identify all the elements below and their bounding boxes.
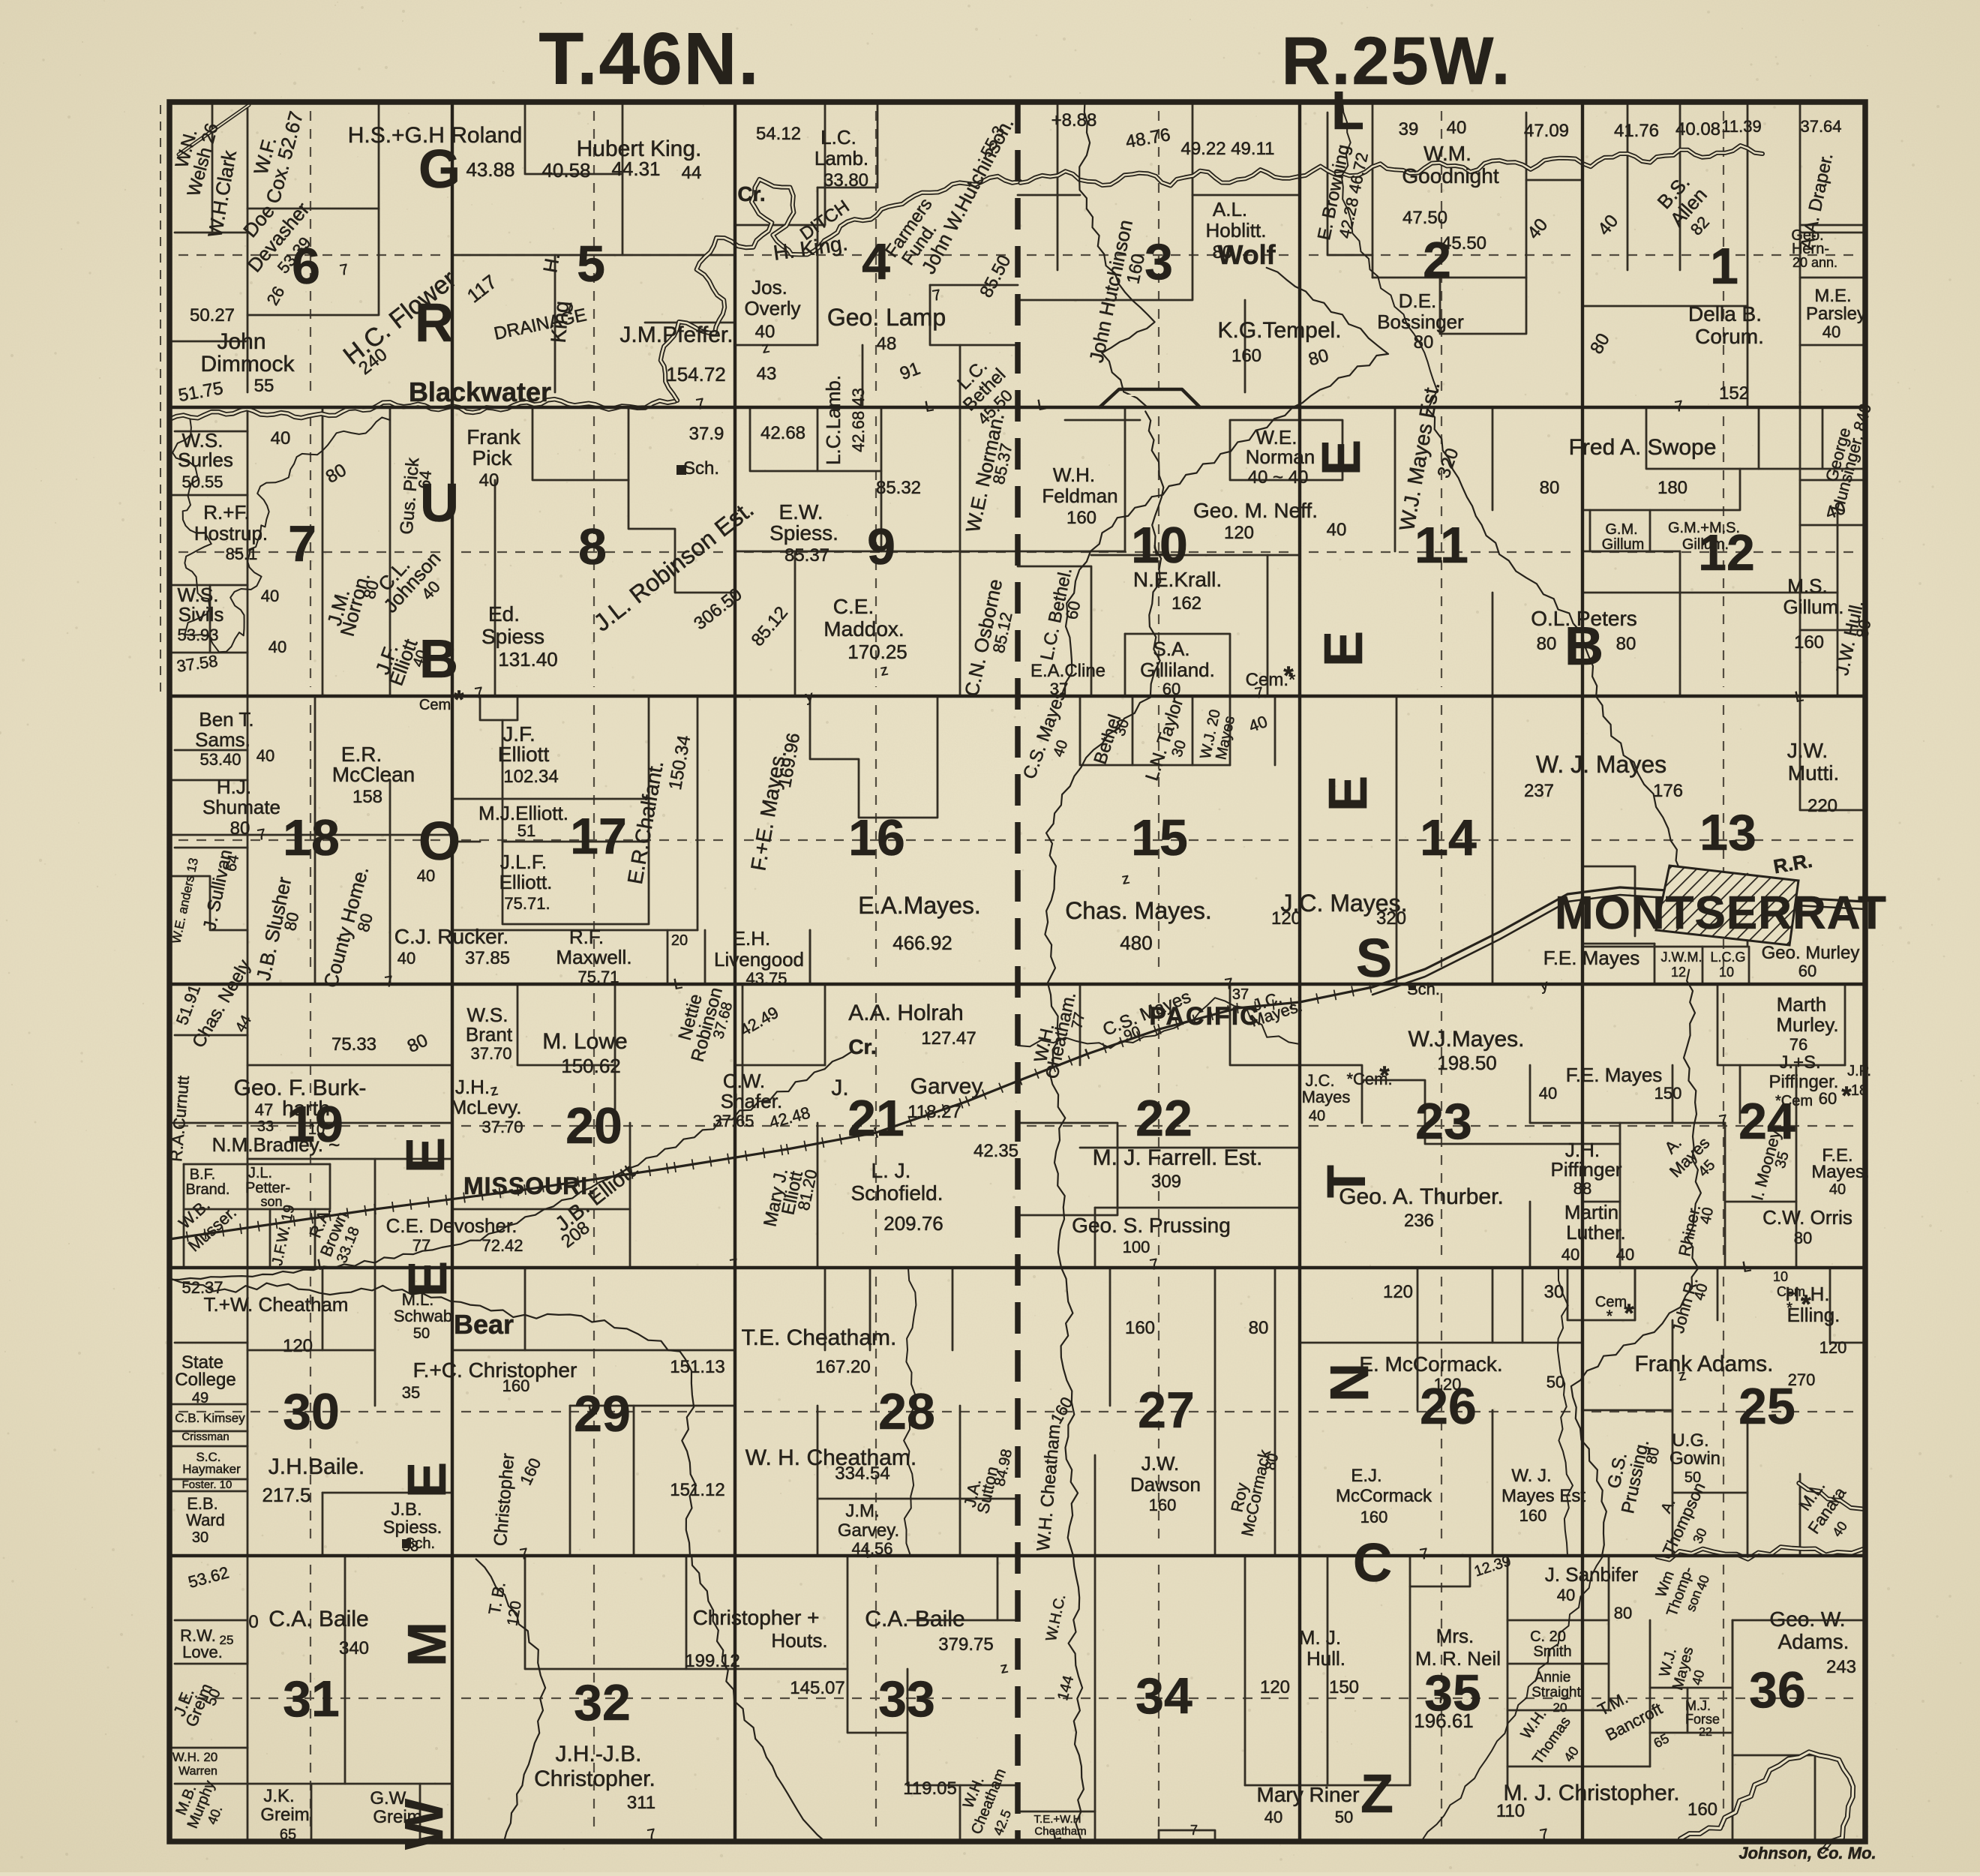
svg-text:Jos.: Jos. <box>751 276 787 299</box>
svg-text:Dawson: Dawson <box>1130 1473 1201 1496</box>
svg-text:K.G.Tempel.: K.G.Tempel. <box>1217 318 1341 343</box>
svg-text:80: 80 <box>1249 1318 1269 1338</box>
svg-text:120: 120 <box>1271 908 1301 929</box>
svg-text:20: 20 <box>1553 1700 1567 1715</box>
svg-text:3: 3 <box>1144 233 1173 290</box>
svg-text:Gillum: Gillum <box>1602 536 1645 553</box>
svg-text:Shafer.: Shafer. <box>721 1090 782 1112</box>
svg-text:88: 88 <box>1573 1179 1591 1198</box>
svg-text:harth: harth <box>282 1097 330 1120</box>
svg-text:W. J. Mayes: W. J. Mayes <box>1536 751 1666 778</box>
svg-text:80: 80 <box>1262 1452 1282 1472</box>
svg-text:309: 309 <box>1151 1172 1181 1192</box>
svg-text:W. H. Cheatham.: W. H. Cheatham. <box>745 1445 916 1470</box>
svg-text:151.13: 151.13 <box>670 1357 724 1377</box>
svg-text:Foster. 10: Foster. 10 <box>182 1478 232 1491</box>
svg-text:Elliott: Elliott <box>498 743 550 766</box>
svg-text:50.27: 50.27 <box>190 305 235 326</box>
svg-text:C. 20: C. 20 <box>1530 1628 1566 1645</box>
svg-text:W.H. 20: W.H. 20 <box>172 1750 217 1764</box>
svg-text:77: 77 <box>412 1236 430 1255</box>
svg-text:80: 80 <box>1643 1446 1663 1466</box>
svg-text:M. J.: M. J. <box>1299 1626 1341 1649</box>
svg-text:S: S <box>1356 929 1392 989</box>
svg-text:E: E <box>1314 631 1374 667</box>
svg-text:40: 40 <box>271 428 291 449</box>
svg-text:J.: J. <box>831 1076 848 1100</box>
svg-text:Fred A. Swope: Fred A. Swope <box>1569 435 1717 460</box>
svg-text:150: 150 <box>1329 1677 1359 1697</box>
svg-text:60: 60 <box>1062 599 1084 621</box>
svg-text:Chas. Mayes.: Chas. Mayes. <box>1065 897 1212 924</box>
svg-text:51: 51 <box>517 821 535 840</box>
svg-text:33: 33 <box>878 1670 935 1727</box>
svg-text:80: 80 <box>1213 242 1233 263</box>
svg-text:45.50: 45.50 <box>1441 233 1486 254</box>
svg-text:30: 30 <box>192 1529 208 1546</box>
svg-text:MONTSERRAT: MONTSERRAT <box>1555 887 1887 939</box>
svg-text:N.M.Bradley. ~: N.M.Bradley. ~ <box>212 1133 340 1156</box>
svg-text:C.B. Kimsey: C.B. Kimsey <box>175 1411 245 1425</box>
svg-text:40: 40 <box>1822 323 1840 341</box>
svg-text:Geo. Murley: Geo. Murley <box>1762 943 1860 963</box>
svg-text:8: 8 <box>578 518 607 575</box>
svg-text:Parsley: Parsley <box>1806 304 1866 324</box>
svg-text:43.75: 43.75 <box>745 969 787 988</box>
svg-text:J.W.: J.W. <box>1787 739 1828 762</box>
svg-text:Smith: Smith <box>1533 1643 1571 1660</box>
svg-text:Geo. A. Thurber.: Geo. A. Thurber. <box>1339 1184 1504 1209</box>
svg-text:J.M.Pfeffer.: J.M.Pfeffer. <box>619 323 733 347</box>
svg-text:72.42: 72.42 <box>481 1236 523 1255</box>
svg-text:34: 34 <box>1135 1667 1192 1724</box>
svg-text:40: 40 <box>1539 1084 1557 1103</box>
svg-text:Gowin: Gowin <box>1669 1448 1720 1469</box>
svg-text:50: 50 <box>1335 1808 1353 1826</box>
svg-text:H.J.: H.J. <box>217 776 251 798</box>
svg-text:O: O <box>418 812 460 872</box>
svg-text:85.37: 85.37 <box>784 545 829 566</box>
svg-text:236: 236 <box>1404 1211 1434 1231</box>
svg-text:20: 20 <box>565 1097 622 1154</box>
svg-text:Geo. M. Neff.: Geo. M. Neff. <box>1193 499 1318 522</box>
svg-text:McCormack: McCormack <box>1336 1486 1432 1506</box>
svg-text:Mary Riner: Mary Riner <box>1257 1783 1360 1806</box>
svg-text:M.E.: M.E. <box>1814 286 1851 306</box>
svg-text:80: 80 <box>230 818 250 839</box>
svg-text:37.70: 37.70 <box>481 1118 523 1136</box>
svg-text:80: 80 <box>1616 634 1636 654</box>
svg-text:7: 7 <box>288 515 316 572</box>
svg-text:J.H.: J.H. <box>455 1076 490 1098</box>
svg-text:334.54: 334.54 <box>835 1463 889 1484</box>
svg-text:17: 17 <box>570 808 627 865</box>
svg-text:Hostrup.: Hostrup. <box>194 522 268 545</box>
svg-text:Elling.: Elling. <box>1787 1304 1840 1326</box>
svg-text:O.L. Peters: O.L. Peters <box>1531 607 1637 630</box>
svg-text:64: 64 <box>415 470 435 490</box>
svg-text:L.C.G: L.C.G <box>1710 950 1745 965</box>
svg-text:Hull.: Hull. <box>1306 1647 1345 1670</box>
svg-text:J.W.: J.W. <box>1141 1452 1180 1475</box>
svg-text:27: 27 <box>1138 1382 1195 1439</box>
svg-text:Greim: Greim <box>260 1805 309 1825</box>
svg-text:44: 44 <box>682 163 702 183</box>
svg-text:40: 40 <box>1557 1586 1575 1604</box>
svg-text:12: 12 <box>1671 965 1686 980</box>
svg-text:Hubert King.: Hubert King. <box>577 137 702 161</box>
svg-text:160: 160 <box>1794 632 1824 653</box>
svg-text:102.34: 102.34 <box>503 767 558 787</box>
svg-text:Goodnight: Goodnight <box>1402 164 1498 188</box>
svg-text:35: 35 <box>402 1383 420 1402</box>
svg-text:J.L.F.: J.L.F. <box>500 851 547 873</box>
svg-text:T.E. Cheatham.: T.E. Cheatham. <box>742 1325 897 1350</box>
svg-text:176: 176 <box>1653 781 1683 801</box>
svg-text:20: 20 <box>671 932 688 949</box>
svg-text:M.S.: M.S. <box>1787 575 1827 597</box>
svg-text:Sch.: Sch. <box>683 458 719 479</box>
svg-text:167.20: 167.20 <box>815 1357 870 1377</box>
svg-text:40: 40 <box>1616 1245 1634 1264</box>
svg-text:Elliott.: Elliott. <box>499 871 553 893</box>
svg-text:J.L.: J.L. <box>248 1165 272 1181</box>
svg-text:379.75: 379.75 <box>938 1634 993 1655</box>
svg-text:40: 40 <box>1697 1206 1717 1226</box>
svg-text:Marth: Marth <box>1777 993 1826 1016</box>
svg-text:Haymaker: Haymaker <box>182 1462 241 1476</box>
svg-text:Warren: Warren <box>178 1765 217 1778</box>
svg-text:Spiess.: Spiess. <box>383 1517 442 1538</box>
svg-text:120: 120 <box>1434 1375 1462 1394</box>
svg-text:son: son <box>260 1194 282 1209</box>
svg-text:U.G.: U.G. <box>1672 1430 1708 1451</box>
svg-text:120: 120 <box>283 1336 313 1356</box>
svg-text:M.J.: M.J. <box>1685 1698 1711 1713</box>
svg-text:S.A.: S.A. <box>1153 638 1189 660</box>
svg-text:Surles: Surles <box>178 449 233 471</box>
svg-text:60: 60 <box>1162 680 1180 698</box>
svg-text:Mayes.: Mayes. <box>1811 1162 1869 1182</box>
svg-text:7: 7 <box>1190 1823 1198 1838</box>
svg-text:*: * <box>1606 1307 1613 1325</box>
svg-text:*: * <box>1283 662 1294 690</box>
svg-text:119.05: 119.05 <box>903 1778 957 1799</box>
svg-text:N.E.Krall.: N.E.Krall. <box>1133 568 1222 591</box>
svg-text:E.J.: E.J. <box>1351 1466 1381 1486</box>
svg-text:R.25W.: R.25W. <box>1281 24 1511 99</box>
svg-text:Sams.: Sams. <box>195 728 250 751</box>
svg-text:16: 16 <box>848 809 905 866</box>
svg-text:Christopher.: Christopher. <box>534 1766 655 1791</box>
svg-text:55: 55 <box>254 376 274 396</box>
svg-text:85.32: 85.32 <box>876 478 921 498</box>
svg-text:L.C.: L.C. <box>820 126 856 149</box>
svg-text:47.09: 47.09 <box>1524 121 1569 141</box>
svg-text:120: 120 <box>1260 1677 1290 1697</box>
svg-text:J.M.: J.M. <box>845 1501 879 1521</box>
svg-text:10: 10 <box>1719 965 1734 980</box>
svg-text:*Cem: *Cem <box>1775 1093 1813 1109</box>
svg-text:Frank Adams.: Frank Adams. <box>1634 1352 1773 1376</box>
svg-text:Corum.: Corum. <box>1695 325 1764 348</box>
svg-text:37.9: 37.9 <box>689 424 724 444</box>
svg-text:Straight: Straight <box>1531 1685 1581 1700</box>
svg-text:199.12: 199.12 <box>685 1651 739 1671</box>
svg-text:Annie: Annie <box>1534 1670 1571 1685</box>
svg-text:0: 0 <box>248 1612 258 1632</box>
svg-text:*: * <box>454 686 464 714</box>
svg-text:40: 40 <box>256 746 274 765</box>
svg-text:T.E.+W.H: T.E.+W.H <box>1034 1813 1081 1826</box>
svg-text:50: 50 <box>413 1325 430 1342</box>
svg-text:Z: Z <box>1360 1764 1393 1824</box>
svg-text:+8.88: +8.88 <box>1051 110 1097 131</box>
svg-text:127.47: 127.47 <box>921 1028 976 1049</box>
svg-text:Brand.: Brand. <box>186 1181 230 1198</box>
svg-text:Ben T.: Ben T. <box>199 708 253 731</box>
svg-text:160: 160 <box>1519 1506 1547 1525</box>
svg-text:C.E. Devosher.: C.E. Devosher. <box>386 1214 517 1237</box>
svg-text:160: 160 <box>1066 508 1096 528</box>
svg-text:22: 22 <box>1699 1726 1712 1739</box>
svg-text:Gillum.: Gillum. <box>1783 596 1844 618</box>
svg-text:*: * <box>1379 1061 1390 1090</box>
svg-text:37.65: 37.65 <box>712 1112 754 1130</box>
svg-text:J.H.Baile.: J.H.Baile. <box>268 1454 364 1479</box>
svg-text:Hoblitt.: Hoblitt. <box>1206 219 1267 242</box>
svg-text:M. J. Christopher.: M. J. Christopher. <box>1503 1781 1679 1805</box>
svg-text:150.62: 150.62 <box>561 1055 621 1077</box>
svg-text:E. McCormack.: E. McCormack. <box>1359 1352 1502 1376</box>
svg-text:A.A. Holrah: A.A. Holrah <box>848 1001 963 1025</box>
svg-text:E.A.Cline: E.A.Cline <box>1030 661 1105 681</box>
svg-text:L. J.: L. J. <box>871 1159 911 1182</box>
svg-text:Luther.: Luther. <box>1566 1221 1626 1244</box>
svg-text:M: M <box>397 1622 457 1667</box>
svg-text:80: 80 <box>1794 1229 1812 1247</box>
svg-text:40: 40 <box>1447 118 1467 138</box>
svg-text:E: E <box>396 1137 456 1173</box>
svg-text:217.5: 217.5 <box>262 1484 310 1506</box>
svg-text:F.+C. Christopher: F.+C. Christopher <box>413 1358 577 1382</box>
svg-text:Schofield.: Schofield. <box>851 1181 943 1205</box>
svg-text:Sivils: Sivils <box>178 603 224 626</box>
svg-text:29: 29 <box>574 1385 631 1442</box>
svg-text:20 ann.: 20 ann. <box>1792 255 1837 270</box>
svg-text:MISSOURI.: MISSOURI. <box>463 1172 595 1199</box>
svg-text:E: E <box>1318 776 1378 812</box>
svg-text:M. Lowe: M. Lowe <box>542 1029 627 1054</box>
svg-text:10: 10 <box>1773 1269 1788 1284</box>
svg-text:McClean: McClean <box>332 763 415 786</box>
svg-text:Adams.: Adams. <box>1778 1630 1849 1653</box>
svg-text:Bear: Bear <box>454 1309 514 1340</box>
svg-text:40: 40 <box>261 587 279 605</box>
svg-text:J. Sanbifer: J. Sanbifer <box>1545 1563 1639 1586</box>
svg-text:R.+F.: R.+F. <box>203 501 249 524</box>
svg-text:College: College <box>175 1370 235 1390</box>
svg-text:D.E.: D.E. <box>1399 290 1437 312</box>
svg-text:40: 40 <box>1561 1245 1579 1264</box>
svg-text:G.M.: G.M. <box>1605 521 1637 538</box>
svg-text:14: 14 <box>1420 809 1477 866</box>
svg-text:60: 60 <box>1798 962 1816 980</box>
svg-text:15: 15 <box>1131 809 1188 866</box>
svg-text:33.80: 33.80 <box>823 170 868 191</box>
svg-text:9: 9 <box>867 518 895 575</box>
svg-text:41.76: 41.76 <box>1614 121 1659 141</box>
svg-text:320: 320 <box>1376 908 1406 929</box>
svg-text:40: 40 <box>1327 520 1347 540</box>
svg-text:Lamb.: Lamb. <box>814 147 868 170</box>
svg-text:80: 80 <box>1540 478 1560 498</box>
svg-text:W.J.Mayes.: W.J.Mayes. <box>1408 1027 1524 1052</box>
svg-text:Cr.: Cr. <box>848 1035 876 1058</box>
svg-text:R.F.: R.F. <box>569 926 604 948</box>
svg-text:42.68: 42.68 <box>760 423 805 443</box>
svg-text:C.J. Rucker.: C.J. Rucker. <box>394 925 508 948</box>
svg-text:80: 80 <box>1414 332 1434 353</box>
svg-text:J.P.: J.P. <box>1847 1063 1871 1079</box>
svg-text:Spiess.: Spiess. <box>769 521 838 545</box>
svg-text:40 ~ 40: 40 ~ 40 <box>1248 467 1309 488</box>
svg-text:43: 43 <box>757 364 777 384</box>
svg-text:Mayes: Mayes <box>1302 1088 1351 1106</box>
svg-text:47.50: 47.50 <box>1402 208 1447 228</box>
svg-text:50.55: 50.55 <box>181 473 223 491</box>
svg-text:25: 25 <box>1738 1378 1795 1435</box>
svg-text:39: 39 <box>1399 119 1419 140</box>
svg-text:80: 80 <box>1852 618 1875 640</box>
svg-text:40: 40 <box>755 322 775 342</box>
svg-text:G.W.: G.W. <box>370 1788 409 1808</box>
svg-text:43.88: 43.88 <box>466 158 514 181</box>
svg-text:49: 49 <box>192 1390 208 1406</box>
svg-text:Ed.: Ed. <box>488 602 520 626</box>
svg-text:131.40: 131.40 <box>498 648 558 671</box>
svg-text:Crissman: Crissman <box>181 1430 229 1443</box>
svg-text:40.08: 40.08 <box>1675 119 1720 140</box>
svg-text:40: 40 <box>397 949 415 968</box>
svg-text:152: 152 <box>1719 383 1749 404</box>
svg-text:Frank: Frank <box>466 425 521 449</box>
svg-text:37.85: 37.85 <box>465 948 510 968</box>
svg-text:18: 18 <box>1851 1082 1867 1099</box>
svg-text:54.12: 54.12 <box>756 124 801 144</box>
svg-text:Spiess: Spiess <box>481 625 544 648</box>
svg-text:53.93: 53.93 <box>177 626 218 644</box>
svg-text:40: 40 <box>417 866 435 885</box>
svg-text:T.+W. Cheatham: T.+W. Cheatham <box>204 1293 349 1316</box>
svg-text:E: E <box>397 1462 457 1498</box>
svg-text:G.M.+M.S.: G.M.+M.S. <box>1668 520 1740 536</box>
svg-text:80: 80 <box>280 911 303 932</box>
svg-text:243: 243 <box>1826 1657 1856 1677</box>
svg-text:85.1: 85.1 <box>226 545 258 563</box>
svg-text:F.E. Mayes: F.E. Mayes <box>1566 1064 1663 1086</box>
svg-text:Norman: Norman <box>1246 446 1315 468</box>
svg-text:H.S.+G.H Roland: H.S.+G.H Roland <box>348 123 523 148</box>
svg-text:Cr.: Cr. <box>737 182 765 206</box>
svg-text:Dimmock: Dimmock <box>201 352 295 377</box>
svg-text:47: 47 <box>255 1100 273 1119</box>
svg-text:Livengood: Livengood <box>714 948 804 971</box>
svg-text:E: E <box>1312 440 1372 476</box>
svg-text:37.64: 37.64 <box>1800 117 1841 136</box>
svg-text:E.W.: E.W. <box>778 500 823 524</box>
svg-text:160: 160 <box>1231 346 1261 366</box>
svg-text:53.40: 53.40 <box>199 750 241 769</box>
svg-text:L: L <box>1331 81 1364 141</box>
svg-text:B.F.: B.F. <box>190 1166 215 1183</box>
svg-text:A.L.: A.L. <box>1213 198 1247 221</box>
svg-text:18: 18 <box>283 809 340 866</box>
svg-text:160: 160 <box>1360 1508 1388 1526</box>
svg-text:E.A.Mayes.: E.A.Mayes. <box>858 892 981 919</box>
svg-text:36: 36 <box>1749 1661 1806 1718</box>
svg-text:Shumate: Shumate <box>202 796 280 818</box>
svg-text:160: 160 <box>1125 1318 1155 1338</box>
svg-text:40: 40 <box>1829 1181 1846 1198</box>
svg-text:50: 50 <box>1546 1373 1564 1391</box>
svg-text:110: 110 <box>1496 1801 1525 1821</box>
svg-text:480: 480 <box>1120 932 1152 954</box>
svg-text:C.W. Orris: C.W. Orris <box>1762 1206 1852 1229</box>
svg-text:75.33: 75.33 <box>331 1034 376 1055</box>
svg-text:28: 28 <box>878 1383 935 1440</box>
svg-text:Cem: Cem <box>419 697 451 713</box>
svg-text:120: 120 <box>1819 1338 1847 1357</box>
svg-text:Garvey.: Garvey. <box>838 1520 899 1541</box>
svg-text:30: 30 <box>1544 1282 1564 1302</box>
svg-text:Geo. Lamp: Geo. Lamp <box>827 304 946 331</box>
svg-text:31: 31 <box>283 1670 340 1727</box>
svg-text:Garvey: Garvey <box>910 1074 983 1099</box>
svg-text:*: * <box>1841 1082 1852 1110</box>
svg-text:John: John <box>217 329 265 354</box>
svg-text:Martin: Martin <box>1564 1201 1618 1223</box>
svg-text:48: 48 <box>877 334 897 354</box>
svg-text:170.25: 170.25 <box>847 641 907 663</box>
svg-text:Brant: Brant <box>466 1023 513 1046</box>
svg-text:160: 160 <box>1149 1496 1177 1514</box>
svg-text:21: 21 <box>847 1090 904 1147</box>
svg-text:120: 120 <box>1224 523 1254 543</box>
svg-text:W.H.: W.H. <box>1053 464 1095 486</box>
svg-text:40.58: 40.58 <box>541 159 590 182</box>
svg-text:F.E. Mayes: F.E. Mayes <box>1543 947 1640 969</box>
svg-text:H.: H. <box>538 251 564 275</box>
svg-text:196.61: 196.61 <box>1414 1709 1474 1732</box>
svg-text:W. J.: W. J. <box>1511 1466 1551 1486</box>
svg-text:13: 13 <box>1699 804 1756 861</box>
svg-text:180: 180 <box>1657 478 1687 498</box>
svg-text:80: 80 <box>1614 1604 1632 1622</box>
svg-text:Overly: Overly <box>744 297 800 320</box>
svg-text:C: C <box>1353 1533 1392 1593</box>
svg-text:198.50: 198.50 <box>1437 1052 1497 1074</box>
svg-text:1: 1 <box>1710 238 1738 295</box>
svg-text:154.72: 154.72 <box>666 363 726 386</box>
svg-text:23: 23 <box>1415 1093 1472 1150</box>
svg-text:Mayes Est: Mayes Est <box>1501 1486 1585 1506</box>
svg-text:40: 40 <box>268 638 286 656</box>
svg-text:C.E.: C.E. <box>833 595 874 618</box>
svg-text:W.M.: W.M. <box>1423 142 1471 165</box>
svg-text:Love.: Love. <box>182 1643 223 1661</box>
svg-text:Schwab: Schwab <box>394 1307 452 1325</box>
